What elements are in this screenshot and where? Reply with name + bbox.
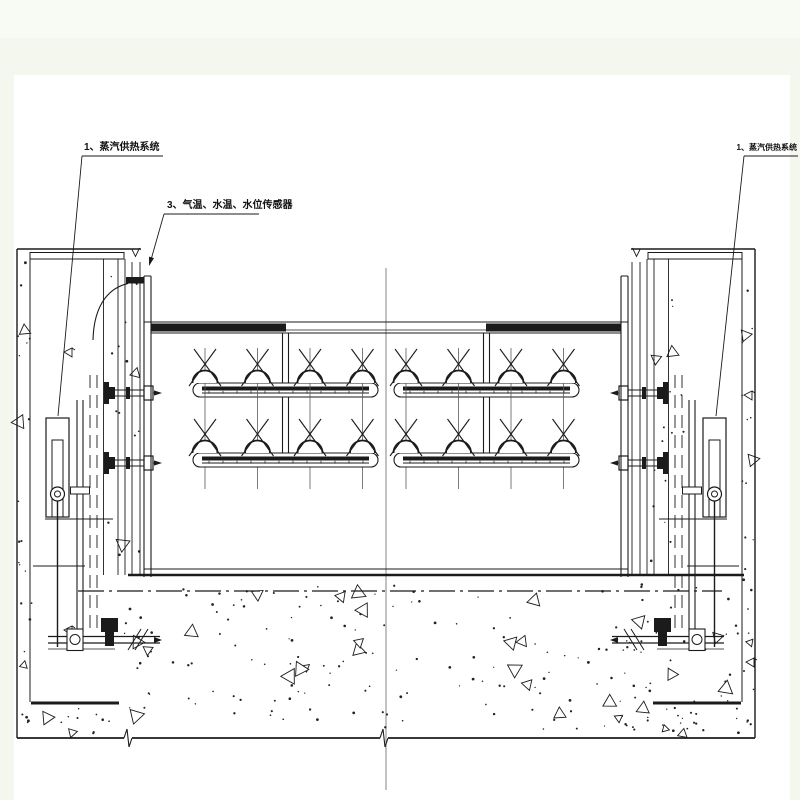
speckle-dot <box>477 596 478 597</box>
speckle-dot <box>640 586 642 588</box>
speckle-dot <box>750 723 752 725</box>
engineering-drawing: 1、蒸汽供热系统 3、气温、水温、水位传感器 1、蒸汽供热系统 <box>0 0 800 800</box>
speckle-dot <box>182 588 184 590</box>
speckle-dot <box>493 627 495 629</box>
speckle-dot <box>726 634 727 635</box>
speckle-dot <box>233 712 235 714</box>
speckle-dot <box>372 653 374 655</box>
speckle-dot <box>107 522 109 524</box>
speckle-dot <box>317 586 319 588</box>
speckle-dot <box>251 659 253 661</box>
speckle-dot <box>392 606 393 607</box>
speckle-dot <box>647 621 649 623</box>
speckle-dot <box>270 714 272 716</box>
speckle-dot <box>227 619 229 621</box>
speckle-dot <box>682 718 683 719</box>
speckle-dot <box>744 536 746 538</box>
speckle-dot <box>320 605 322 607</box>
speckle-dot <box>633 685 636 688</box>
speckle-dot <box>666 709 667 710</box>
speckle-dot <box>641 583 644 586</box>
anchor-block <box>101 618 118 632</box>
speckle-dot <box>24 651 25 652</box>
speckle-dot <box>124 633 125 634</box>
sensor-conduit-head <box>126 277 144 284</box>
sheet-margin-top <box>0 0 800 38</box>
speckle-dot <box>290 684 293 687</box>
speckle-dot <box>664 522 665 523</box>
speckle-dot <box>672 306 673 307</box>
speckle-dot <box>682 431 684 433</box>
speckle-dot <box>750 417 752 419</box>
speckle-dot <box>746 289 748 291</box>
speckle-dot <box>669 541 671 543</box>
speckle-dot <box>578 657 579 658</box>
speckle-dot <box>670 659 672 661</box>
speckle-dot <box>101 718 104 721</box>
speckle-dot <box>690 712 692 714</box>
speckle-dot <box>305 596 307 598</box>
speckle-dot <box>686 728 688 730</box>
pier-cap-plate <box>30 253 124 260</box>
pier-cap-plate <box>648 253 742 260</box>
speckle-dot <box>624 672 625 673</box>
speckle-dot <box>111 276 112 277</box>
speckle-dot <box>118 553 121 556</box>
speckle-dot <box>26 342 27 343</box>
speckle-dot <box>737 731 740 734</box>
speckle-dot <box>309 708 311 710</box>
speckle-dot <box>264 663 266 665</box>
speckle-dot <box>78 708 79 709</box>
speckle-dot <box>665 480 667 482</box>
speckle-dot <box>191 662 193 664</box>
speckle-dot <box>19 564 20 565</box>
speckle-dot <box>330 616 333 619</box>
label-sensors: 3、气温、水温、水位传感器 <box>167 198 294 211</box>
speckle-dot <box>139 616 142 619</box>
speckle-dot <box>509 617 511 619</box>
speckle-dot <box>25 570 26 571</box>
speckle-dot <box>626 725 628 727</box>
speckle-dot <box>626 646 628 648</box>
speckle-dot <box>384 726 386 728</box>
speckle-dot <box>633 729 635 731</box>
speckle-dot <box>459 685 460 686</box>
speckle-dot <box>670 607 672 609</box>
speckle-dot <box>195 703 196 704</box>
speckle-dot <box>212 691 214 693</box>
speckle-dot <box>661 440 663 442</box>
speckle-dot <box>20 540 22 542</box>
speckle-dot <box>323 665 325 667</box>
valve-body <box>689 629 705 651</box>
speckle-dot <box>399 695 402 698</box>
speckle-dot <box>241 599 243 601</box>
speckle-dot <box>674 707 676 709</box>
speckle-dot <box>111 352 113 354</box>
speckle-dot <box>721 695 722 696</box>
speckle-dot <box>531 709 533 711</box>
speckle-dot <box>743 670 745 672</box>
speckle-dot <box>129 707 130 708</box>
speckle-dot <box>239 699 241 701</box>
speckle-dot <box>233 604 235 606</box>
speckle-dot <box>19 355 20 356</box>
speckle-dot <box>434 622 437 625</box>
speckle-dot <box>456 623 458 625</box>
speckle-dot <box>364 690 366 692</box>
speckle-dot <box>553 719 555 721</box>
speckle-dot <box>68 716 70 718</box>
speckle-dot <box>472 678 475 681</box>
speckle-dot <box>219 633 221 635</box>
speckle-dot <box>695 722 697 724</box>
speckle-dot <box>683 640 686 643</box>
label-steam-system-left: 1、蒸汽供热系统 <box>84 140 160 153</box>
speckle-dot <box>641 599 643 601</box>
speckle-dot <box>172 661 175 664</box>
speckle-dot <box>702 729 704 731</box>
speckle-dot <box>233 695 235 697</box>
speckle-dot <box>605 648 607 650</box>
speckle-dot <box>448 666 451 669</box>
speckle-dot <box>328 684 330 686</box>
speckle-dot <box>746 721 747 722</box>
speckle-dot <box>640 652 641 653</box>
speckle-dot <box>393 585 395 587</box>
speckle-dot <box>266 628 268 630</box>
speckle-dot <box>187 664 189 666</box>
speckle-dot <box>288 638 289 639</box>
speckle-dot <box>31 602 33 604</box>
speckle-dot <box>485 704 487 706</box>
speckle-dot <box>352 712 355 715</box>
speckle-dot <box>211 603 214 606</box>
speckle-dot <box>547 652 549 654</box>
speckle-dot <box>411 601 412 602</box>
speckle-dot <box>216 611 218 613</box>
speckle-dot <box>234 645 236 647</box>
speckle-dot <box>329 672 330 673</box>
anchor-block <box>658 632 667 646</box>
speckle-dot <box>24 261 27 264</box>
speckle-dot <box>737 632 739 634</box>
pipe-flange <box>71 487 90 494</box>
speckle-dot <box>669 391 671 393</box>
speckle-dot <box>374 593 375 594</box>
speckle-dot <box>750 589 753 592</box>
speckle-dot <box>736 718 737 719</box>
speckle-dot <box>108 720 110 722</box>
speckle-dot <box>596 683 598 685</box>
speckle-dot <box>623 649 624 650</box>
speckle-dot <box>751 328 753 330</box>
speckle-dot <box>648 689 651 692</box>
speckle-dot <box>299 606 301 608</box>
valve-body <box>67 629 83 651</box>
speckle-dot <box>383 624 385 626</box>
speckle-dot <box>649 683 651 685</box>
speckle-dot <box>342 661 344 663</box>
speckle-dot <box>671 432 673 434</box>
speckle-dot <box>663 426 665 428</box>
speckle-dot <box>570 710 572 712</box>
speckle-dot <box>418 600 421 603</box>
speckle-dot <box>640 640 642 642</box>
speckle-dot <box>745 482 747 484</box>
anchor-block <box>105 632 114 646</box>
speckle-dot <box>138 431 140 433</box>
speckle-dot <box>185 594 188 597</box>
speckle-dot <box>406 692 408 694</box>
speckle-dot <box>472 656 475 659</box>
speckle-dot <box>188 698 190 700</box>
speckle-dot <box>543 677 546 680</box>
speckle-dot <box>355 629 356 630</box>
speckle-dot <box>671 299 673 301</box>
speckle-dot <box>396 669 397 670</box>
speckle-dot <box>753 539 754 540</box>
speckle-dot <box>499 685 501 687</box>
speckle-dot <box>742 578 745 581</box>
speckle-dot <box>18 562 19 563</box>
speckle-dot <box>569 699 572 702</box>
speckle-dot <box>727 598 730 601</box>
speckle-dot <box>20 284 22 286</box>
speckle-dot <box>148 692 150 694</box>
speckle-dot <box>243 605 246 608</box>
speckle-dot <box>564 655 566 657</box>
speckle-dot <box>92 732 94 734</box>
speckle-dot <box>21 713 23 715</box>
speckle-dot <box>620 701 621 702</box>
speckle-dot <box>576 728 578 730</box>
speckle-dot <box>60 721 62 723</box>
speckle-dot <box>291 617 292 618</box>
speckle-dot <box>382 711 384 713</box>
speckle-dot <box>134 434 136 436</box>
speckle-dot <box>291 639 294 642</box>
speckle-dot <box>647 717 649 719</box>
speckle-dot <box>218 592 220 594</box>
speckle-dot <box>25 716 28 719</box>
speckle-dot <box>115 410 117 412</box>
speckle-dot <box>493 667 494 668</box>
speckle-dot <box>150 631 153 634</box>
speckle-dot <box>402 720 404 722</box>
speckle-dot <box>27 719 30 722</box>
speckle-dot <box>548 672 549 673</box>
speckle-dot <box>274 700 276 702</box>
speckle-dot <box>696 587 698 589</box>
speckle-dot <box>736 708 738 710</box>
pipe-flange <box>683 487 702 494</box>
speckle-dot <box>343 625 346 628</box>
speckle-dot <box>271 710 273 712</box>
speckle-dot <box>282 718 284 720</box>
speckle-dot <box>273 592 275 594</box>
speckle-dot <box>647 719 649 721</box>
speckle-dot <box>534 687 535 688</box>
speckle-dot <box>662 724 663 725</box>
speckle-dot <box>729 673 731 675</box>
speckle-dot <box>587 661 590 664</box>
speckle-dot <box>297 656 299 658</box>
steam-header-pipe <box>486 324 621 332</box>
anchor-block <box>654 618 671 632</box>
speckle-dot <box>20 602 22 604</box>
speckle-dot <box>316 718 319 721</box>
speckle-dot <box>503 685 505 687</box>
speckle-dot <box>129 608 132 611</box>
speckle-dot <box>753 689 755 691</box>
speckle-dot <box>290 663 292 665</box>
speckle-dot <box>539 692 541 694</box>
speckle-dot <box>96 714 98 716</box>
speckle-dot <box>604 725 605 726</box>
speckle-dot <box>747 608 749 610</box>
speckle-dot <box>672 729 675 732</box>
speckle-dot <box>139 662 142 665</box>
label-steam-system-right: 1、蒸汽供热系统 <box>737 142 797 152</box>
speckle-dot <box>369 685 371 687</box>
speckle-dot <box>126 360 129 363</box>
speckle-dot <box>118 412 120 414</box>
speckle-dot <box>18 500 20 502</box>
speckle-dot <box>482 680 483 681</box>
speckle-dot <box>76 717 78 719</box>
speckle-dot <box>143 707 145 709</box>
speckle-dot <box>735 624 737 626</box>
speckle-dot <box>634 697 636 699</box>
speckle-dot <box>695 713 697 715</box>
speckle-dot <box>747 419 749 421</box>
speckle-dot <box>645 687 646 688</box>
speckle-dot <box>677 715 679 717</box>
speckle-dot <box>598 648 600 650</box>
speckle-dot <box>416 658 418 660</box>
speckle-dot <box>338 665 340 667</box>
speckle-dot <box>744 568 746 570</box>
speckle-dot <box>632 726 634 728</box>
speckle-dot <box>727 700 728 701</box>
speckle-dot <box>289 697 292 700</box>
speckle-dot <box>534 643 536 645</box>
speckle-dot <box>304 692 305 693</box>
speckle-dot <box>615 626 617 628</box>
speckle-dot <box>298 691 299 692</box>
drawing-paper <box>14 75 790 800</box>
speckle-dot <box>337 600 339 602</box>
speckle-dot <box>680 722 681 723</box>
speckle-dot <box>125 622 127 624</box>
speckle-dot <box>633 649 635 651</box>
speckle-dot <box>626 640 628 642</box>
speckle-dot <box>610 677 613 680</box>
speckle-dot <box>136 667 138 669</box>
speckle-dot <box>386 713 388 715</box>
speckle-dot <box>543 728 545 730</box>
speckle-dot <box>503 636 505 638</box>
steam-header-pipe <box>151 324 286 332</box>
speckle-dot <box>650 560 653 563</box>
speckle-dot <box>18 540 20 542</box>
speckle-dot <box>693 722 695 724</box>
speckle-dot <box>655 632 657 634</box>
speckle-dot <box>493 713 495 715</box>
speckle-dot <box>748 632 750 634</box>
